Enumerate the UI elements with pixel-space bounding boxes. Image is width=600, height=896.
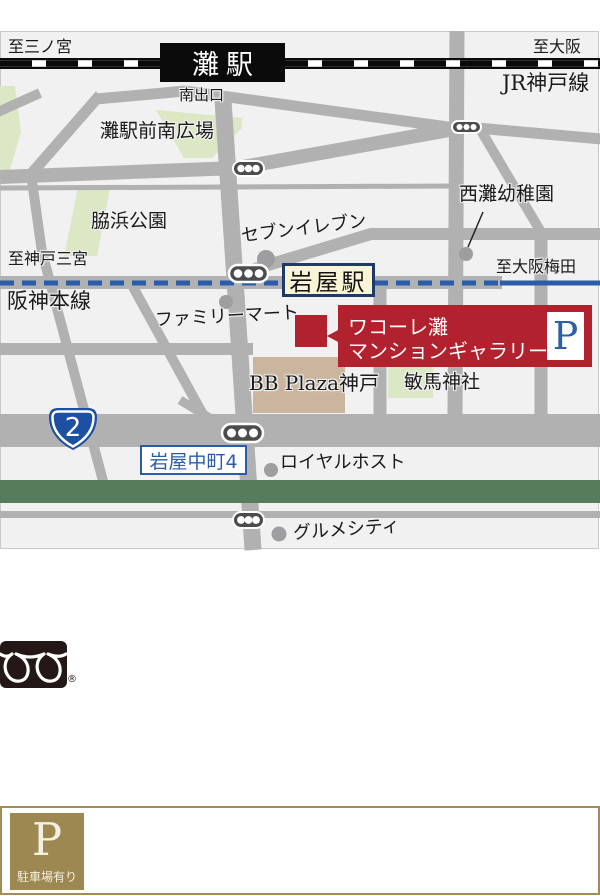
parking-availability-label: 駐車場有り — [10, 868, 84, 885]
gourmet-city-dot — [272, 527, 287, 542]
royal-host-dot — [264, 463, 278, 477]
label-to-osaka: 至大阪 — [533, 39, 581, 56]
nada-station-box: 灘駅 — [160, 43, 285, 82]
label-wakihama-park: 脇浜公園 — [91, 212, 167, 232]
gallery-name-line2: マンションギャラリー — [348, 335, 548, 364]
label-nada-plaza: 灘駅前南広場 — [100, 122, 214, 142]
gallery-banner: ワコーレ灘 マンションギャラリー P — [338, 305, 592, 367]
gallery-parking-p: P — [553, 314, 579, 358]
green-belt — [0, 480, 600, 503]
freedial-icon — [0, 641, 67, 688]
parking-info-box: P 駐車場有り — [0, 806, 600, 895]
route2-shield-icon: 2 — [48, 407, 98, 451]
label-south-exit: 南出口 — [179, 88, 224, 104]
label-bb-plaza-kobe: BB Plaza神戸 — [249, 373, 379, 394]
route2-number: 2 — [65, 413, 82, 443]
iwaya-nakamachi-crossing-box: 岩屋中町4 — [140, 445, 247, 475]
label-hanshin-main-line: 阪神本線 — [7, 290, 91, 312]
signal-icon — [233, 161, 264, 176]
kindergarten-dot — [459, 247, 473, 261]
parking-p-mark: P — [10, 813, 84, 867]
crossing-label: 岩屋中町4 — [149, 447, 237, 474]
page: 灘駅 岩屋駅 岩屋中町4 ワコーレ灘 マンションギャラリー P 2 至三ノ宮 至… — [0, 0, 600, 896]
label-nishinada-kindergarten: 西灘幼稚園 — [459, 185, 554, 205]
iwaya-station-box: 岩屋駅 — [282, 263, 375, 297]
jr-line — [0, 58, 600, 69]
gallery-parking-badge: P — [547, 312, 584, 360]
iwaya-station-label: 岩屋駅 — [290, 263, 368, 297]
registered-mark: ® — [67, 674, 77, 685]
label-to-osaka-umeda: 至大阪梅田 — [496, 259, 576, 276]
label-jr-kobe-line: JR神戸線 — [502, 72, 589, 94]
gallery-building-marker — [295, 315, 327, 347]
label-to-kobe-sannomiya: 至神戸三宮 — [8, 251, 88, 268]
label-royal-host: ロイヤルホスト — [280, 454, 405, 473]
signal-icon — [229, 265, 268, 282]
label-to-sannomiya: 至三ノ宮 — [8, 39, 72, 56]
signal-icon — [233, 512, 264, 528]
nada-station-label: 灘駅 — [185, 43, 260, 82]
signal-icon — [222, 424, 263, 442]
label-minume-shrine: 敏馬神社 — [404, 373, 480, 393]
signal-icon — [452, 121, 481, 133]
south-road — [0, 511, 600, 518]
parking-badge: P 駐車場有り — [10, 813, 84, 890]
